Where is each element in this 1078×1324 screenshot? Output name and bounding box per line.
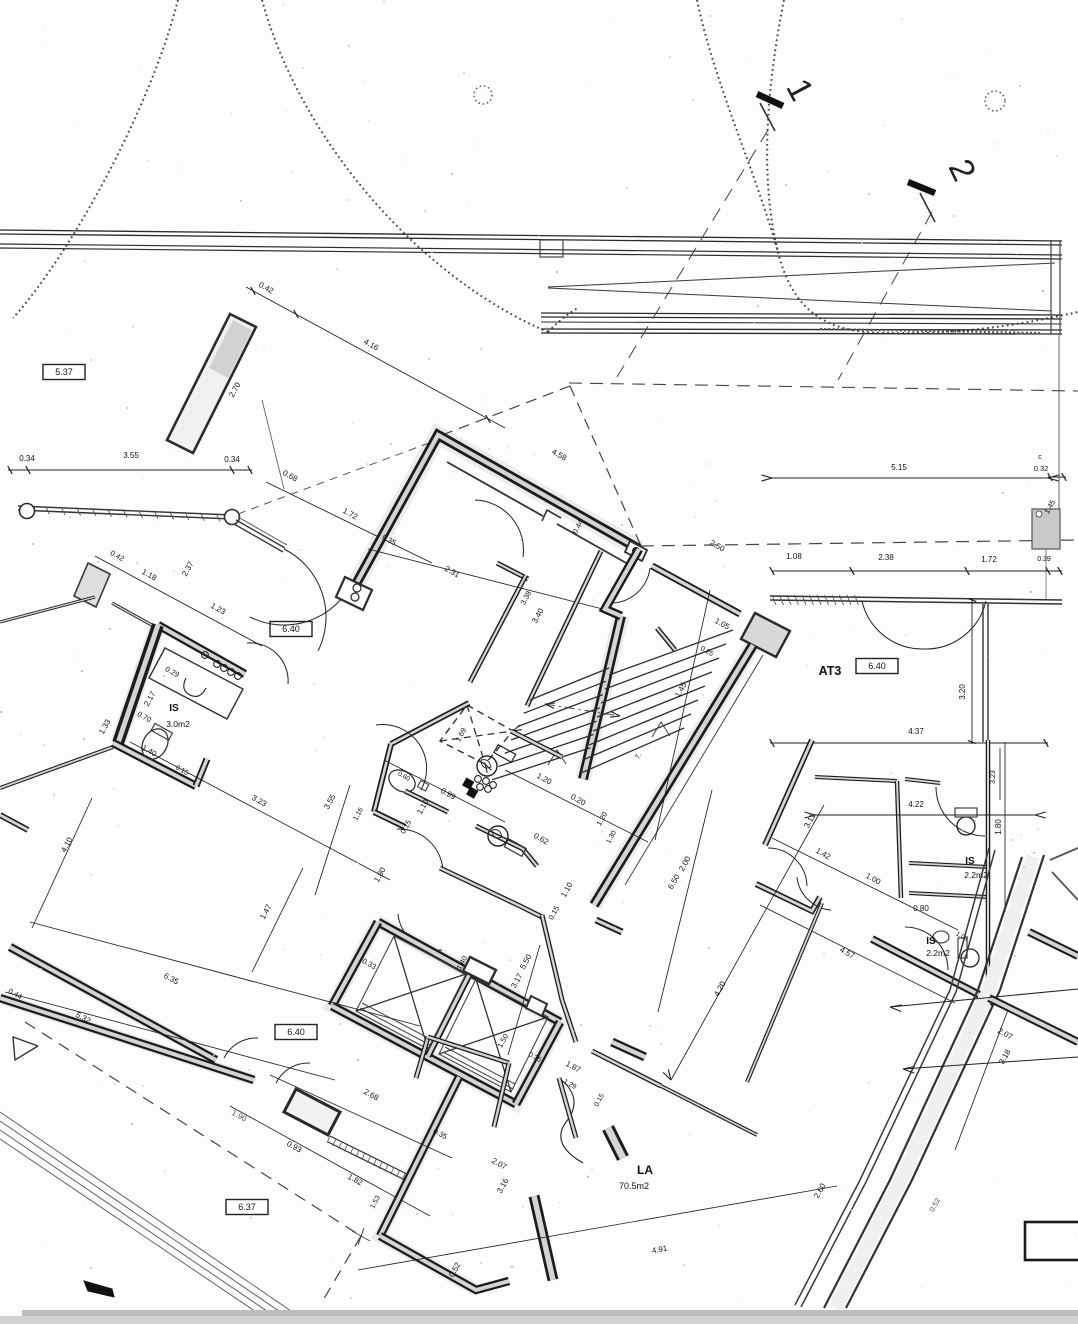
svg-text:0.34: 0.34 xyxy=(19,454,35,463)
svg-text:1.08: 1.08 xyxy=(786,552,802,561)
svg-text:6.40: 6.40 xyxy=(287,1027,305,1037)
svg-text:4.37: 4.37 xyxy=(908,727,924,736)
svg-text:70.5m2: 70.5m2 xyxy=(619,1181,649,1191)
svg-text:5.37: 5.37 xyxy=(55,367,73,377)
svg-text:6.40: 6.40 xyxy=(868,661,886,671)
svg-text:IS: IS xyxy=(926,936,936,947)
svg-text:3.0m2: 3.0m2 xyxy=(166,719,190,729)
svg-text:0.39: 0.39 xyxy=(1037,556,1051,563)
svg-text:AT3: AT3 xyxy=(819,664,842,678)
svg-text:6.37: 6.37 xyxy=(238,1202,256,1212)
svg-text:IS: IS xyxy=(169,703,179,714)
svg-text:2.2m2: 2.2m2 xyxy=(926,948,950,958)
svg-text:3.23: 3.23 xyxy=(990,770,997,784)
svg-text:1.80: 1.80 xyxy=(994,819,1003,835)
svg-text:IS: IS xyxy=(965,856,975,867)
svg-text:5.15: 5.15 xyxy=(891,463,907,472)
svg-text:0.32: 0.32 xyxy=(1034,464,1049,473)
svg-text:2.38: 2.38 xyxy=(878,553,894,562)
svg-text:LA: LA xyxy=(637,1163,653,1177)
svg-text:1.72: 1.72 xyxy=(981,555,997,564)
svg-text:3.55: 3.55 xyxy=(123,451,139,460)
svg-text:3.20: 3.20 xyxy=(958,684,967,700)
svg-text:0.34: 0.34 xyxy=(224,455,240,464)
svg-text:4.22: 4.22 xyxy=(908,800,924,809)
svg-text:c: c xyxy=(1038,454,1042,461)
svg-text:2.2m2: 2.2m2 xyxy=(964,870,988,880)
